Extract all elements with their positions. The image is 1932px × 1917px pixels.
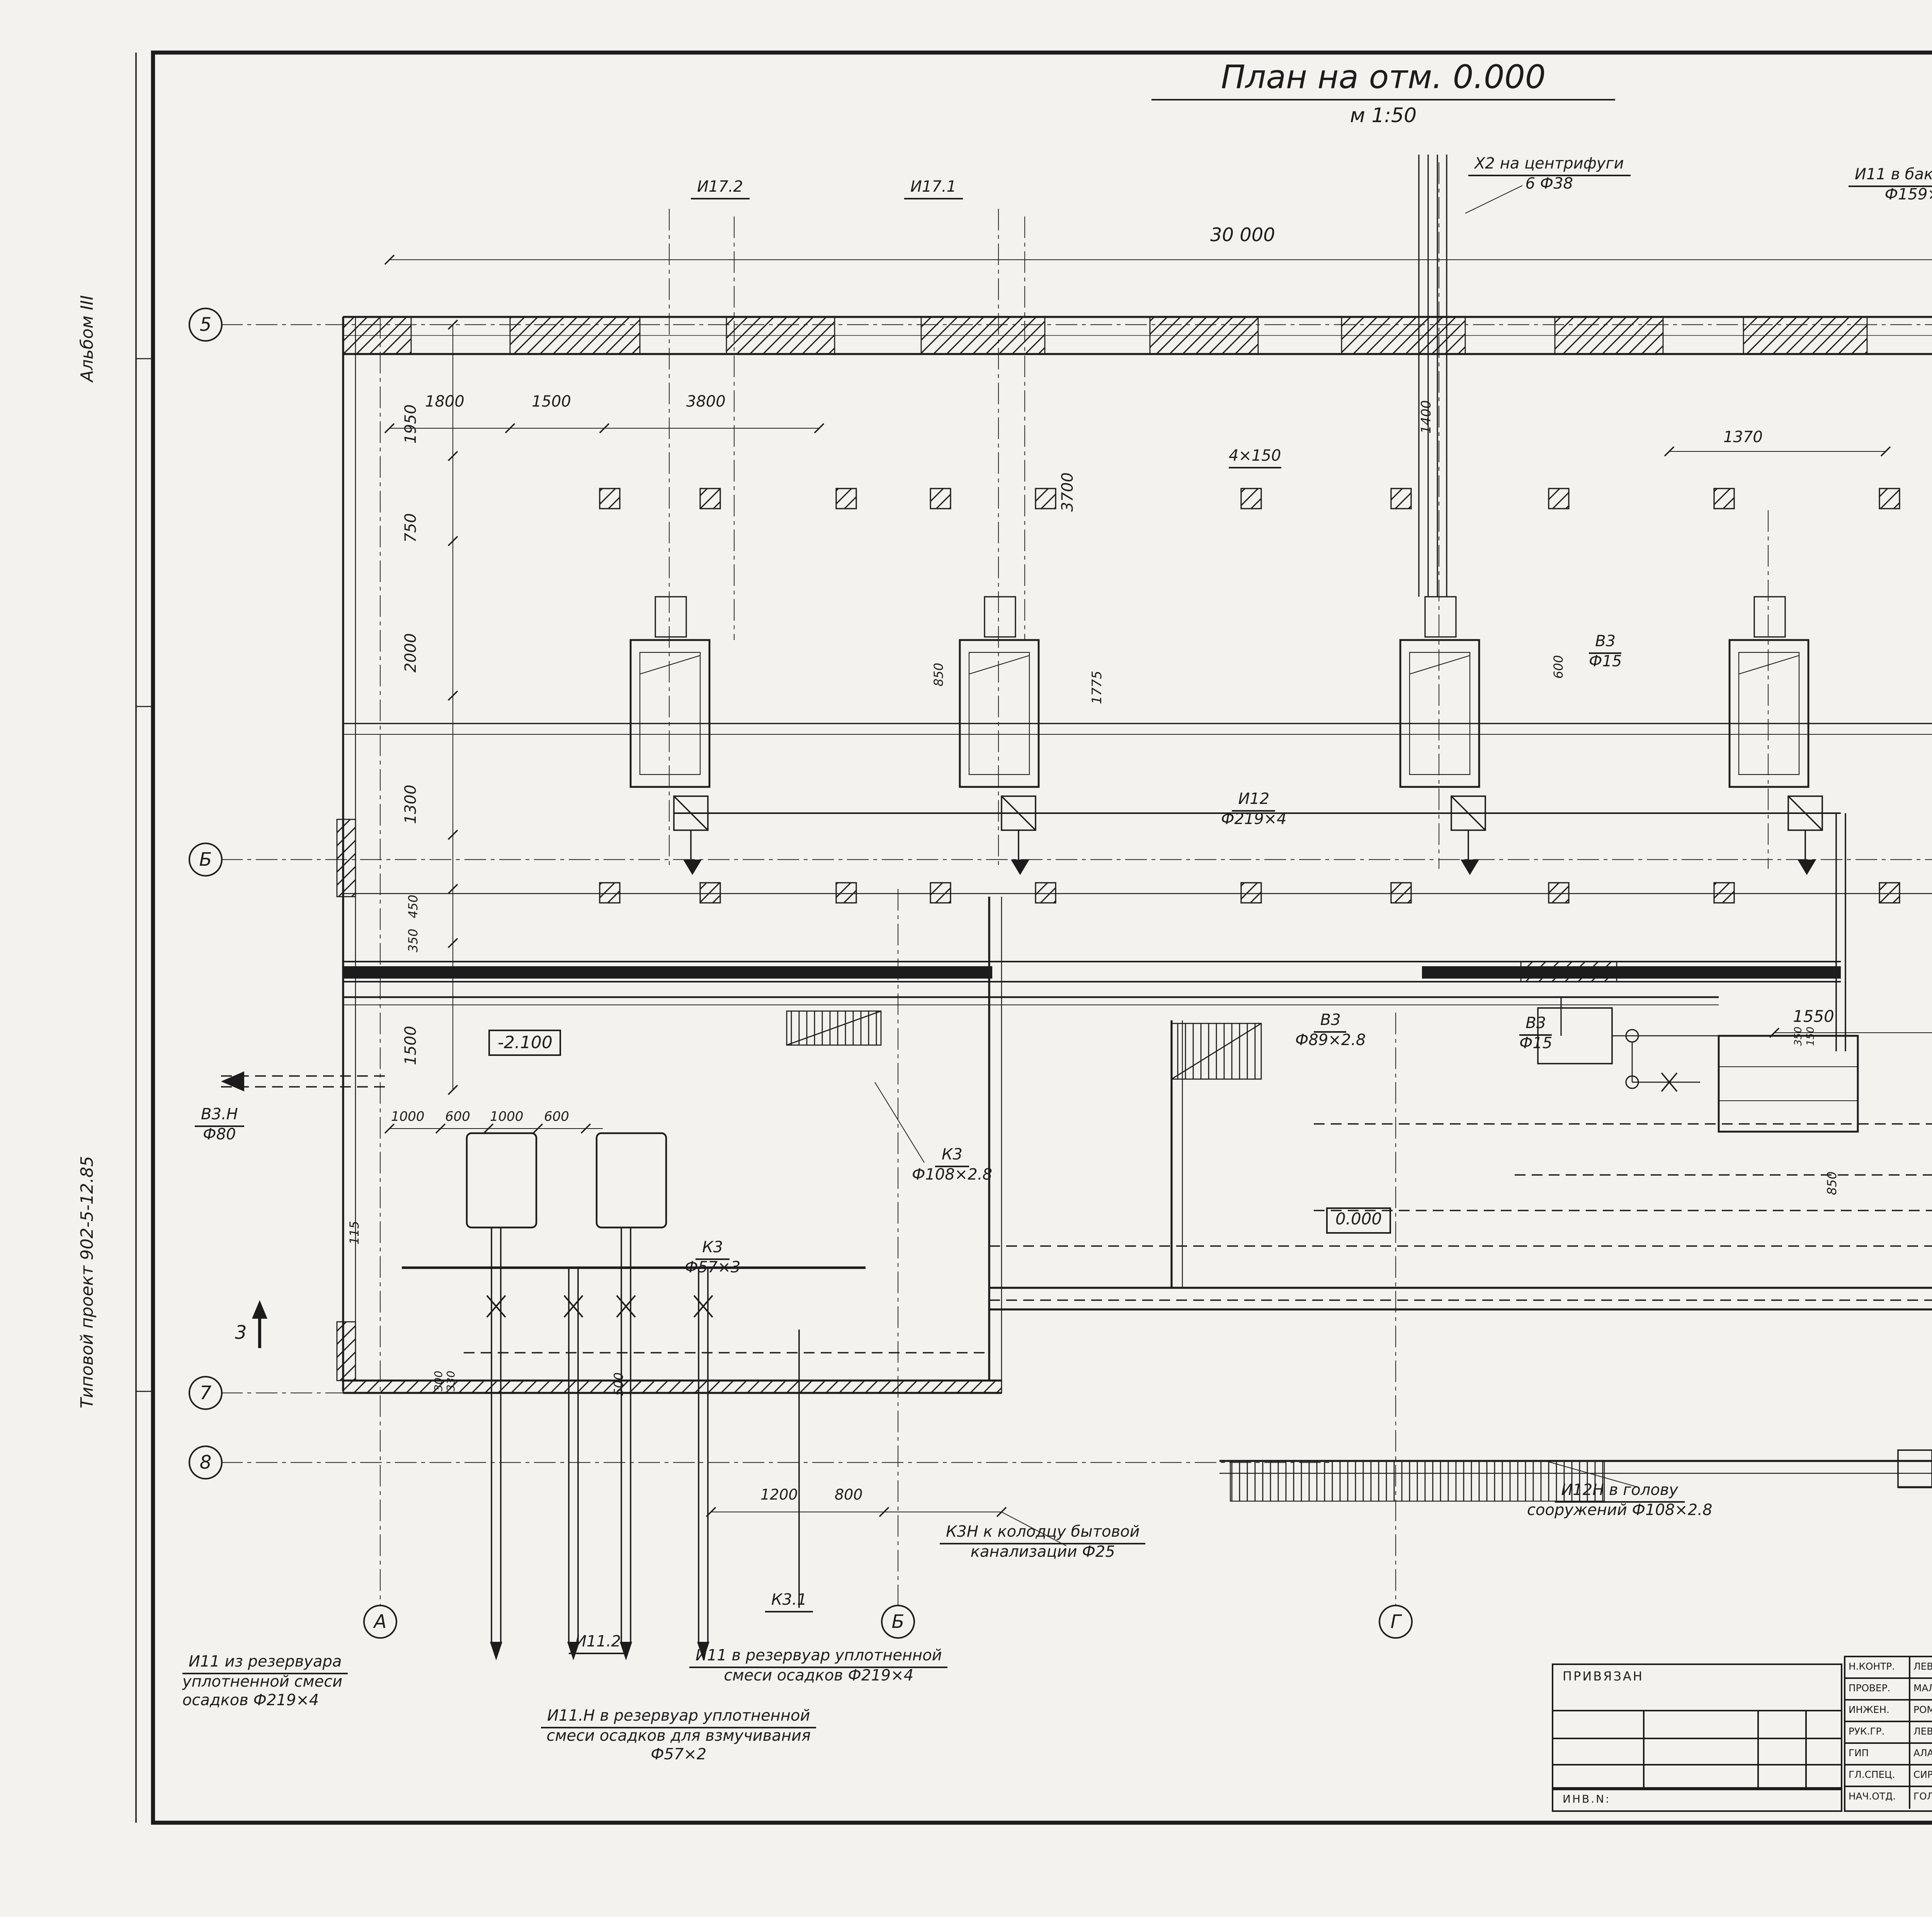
staff-row: Н.КОНТР.ЛЕВИЩЕВА [1845, 1657, 1932, 1679]
elevation-zero-center: 0.000 [1326, 1207, 1391, 1233]
wall-hatch [337, 193, 1932, 1393]
dim-450: 450 [408, 895, 420, 918]
axis-row-7: 7 [189, 1376, 223, 1410]
dashed-pipes [221, 946, 1932, 1481]
callout-i12: И12Ф219×4 [1221, 792, 1287, 829]
dim-1400: 1400 [1421, 400, 1434, 434]
callout-x2: Х2 на центрифуги6 Ф38 [1468, 156, 1630, 194]
dim-1370: 1370 [1723, 431, 1763, 448]
dim-1200: 1200 [760, 1489, 798, 1504]
dim-1000b: 1000 [490, 1112, 524, 1125]
dim-1800: 1800 [425, 396, 464, 412]
dim-800b: 800 [835, 1489, 863, 1504]
callout-i12n: И12Н в головусооружений Ф108×2.8 [1527, 1483, 1712, 1520]
callout-v3-f89: В3Ф89×2.8 [1295, 1013, 1366, 1050]
elevation-minus-2100: -2.100 [488, 1030, 562, 1057]
axis-col-g: Г [1379, 1605, 1413, 1639]
callout-v3n: В3.НФ80 [195, 1107, 244, 1145]
titleblock-staff-table: Н.КОНТР.ЛЕВИЩЕВА ПРОВЕР.МАЛЫХ ИНЖЕН.РОМА… [1844, 1656, 1932, 1812]
dim-1550: 1550 [1793, 1010, 1834, 1027]
callout-i17-1: И17.1 [904, 179, 963, 199]
axis-row-b: Б [189, 843, 223, 877]
callout-i17-2: И17.2 [691, 179, 749, 199]
dim-850b: 850 [1827, 1171, 1839, 1195]
dim-350b: 350 [1794, 1027, 1804, 1046]
pipes [343, 155, 1932, 1051]
drawing-title: План на отм. 0.000 [1151, 59, 1615, 100]
walls [343, 193, 1932, 1487]
callout-i11-to: И11 в резервуар уплотненнойсмеси осадков… [689, 1648, 948, 1686]
axis-row-8: 8 [189, 1445, 223, 1479]
callout-v3-f15-b: В3Ф15 [1519, 1016, 1552, 1054]
drawing-scale: м 1:50 [1151, 105, 1615, 128]
margin-project: Типовой проект 902-5-12.85 [79, 1156, 96, 1408]
callout-i11-2: И11.2 [569, 1634, 627, 1654]
drawing-sheet: Альбом III Типовой проект 902-5-12.85 Пл… [0, 0, 1932, 1917]
axis-col-a: А [363, 1605, 397, 1639]
dim-600b: 600 [544, 1112, 569, 1125]
section-marks [252, 1291, 1932, 1348]
staff-row: ГИПАЛАЕВ [1845, 1744, 1932, 1766]
dim-850a: 850 [934, 663, 946, 686]
callout-i11n: И11.Н в резервуар уплотненнойсмеси осадк… [541, 1708, 816, 1765]
title-block: ПРИВЯЗАН ИНВ.N: Н.КОНТР.ЛЕВИЩЕВА ПРОВЕР.… [1552, 1555, 1932, 1812]
dim-2000: 2000 [405, 633, 420, 672]
tanks-pumps [402, 1011, 1261, 1660]
callout-k3n: К3Н к колодцу бытовойканализации Ф25 [940, 1524, 1146, 1562]
dim-3800: 3800 [686, 396, 726, 412]
inventory-label: ИНВ.N: [1552, 1789, 1842, 1812]
dim-150b: 150 [1806, 1027, 1816, 1046]
margin-album: Альбом III [79, 295, 96, 382]
staff-row: ГЛ.СПЕЦ.СИРОТА [1845, 1766, 1932, 1788]
callout-v3-f15-a: В3Ф15 [1589, 634, 1622, 672]
callout-k3-1: К3.1 [765, 1592, 813, 1612]
dim-1775: 1775 [1092, 671, 1105, 704]
dim-1500: 1500 [532, 396, 571, 412]
columns [600, 489, 1932, 903]
staff-row: НАЧ.ОТД.ГОЛЬДМАН [1845, 1788, 1932, 1809]
dim-1300: 1300 [405, 785, 420, 824]
staff-row: ИНЖЕН.РОМАНОВА [1845, 1701, 1932, 1722]
dim-30000: 30 000 [1210, 226, 1275, 245]
callout-i11-tank: И11 в бак осадкаФ159×3.2 [1849, 167, 1932, 205]
dim-1500v: 1500 [405, 1026, 420, 1065]
right-equipment [1230, 975, 1932, 1501]
callout-k3-f57-a: К3Ф57×3 [685, 1240, 740, 1278]
centrifuges [631, 597, 1808, 787]
callout-i11-from: И11 из резервуарауплотненной смесиосадко… [182, 1654, 348, 1711]
dim-350: 350 [408, 929, 420, 952]
staff-row: РУК.ГР.ЛЕВИЩЕВА [1845, 1723, 1932, 1744]
dim-3700: 3700 [1062, 472, 1077, 512]
titleblock-binding-box: ПРИВЯЗАН [1552, 1663, 1842, 1789]
dim-300a: 300 [434, 1371, 445, 1392]
dim-500b: 500 [614, 1372, 626, 1396]
dim-330: 330 [447, 1371, 457, 1392]
axis-row-5: 5 [189, 308, 223, 342]
dim-600a: 600 [445, 1112, 470, 1125]
dim-600v: 600 [1553, 655, 1566, 679]
staff-row: ПРОВЕР.МАЛЫХ [1845, 1679, 1932, 1701]
axis-col-b: Б [881, 1605, 915, 1639]
dim-4x150: 4×150 [1229, 450, 1281, 468]
section-label-left: 3 [235, 1323, 247, 1343]
dim-750: 750 [405, 513, 420, 543]
dim-1950: 1950 [405, 404, 420, 444]
dim-115a: 115 [349, 1221, 362, 1245]
dim-1000a: 1000 [391, 1112, 425, 1125]
callout-k3-f108: К3Ф108×2.8 [912, 1147, 992, 1185]
binding-label: ПРИВЯЗАН [1553, 1665, 1841, 1711]
